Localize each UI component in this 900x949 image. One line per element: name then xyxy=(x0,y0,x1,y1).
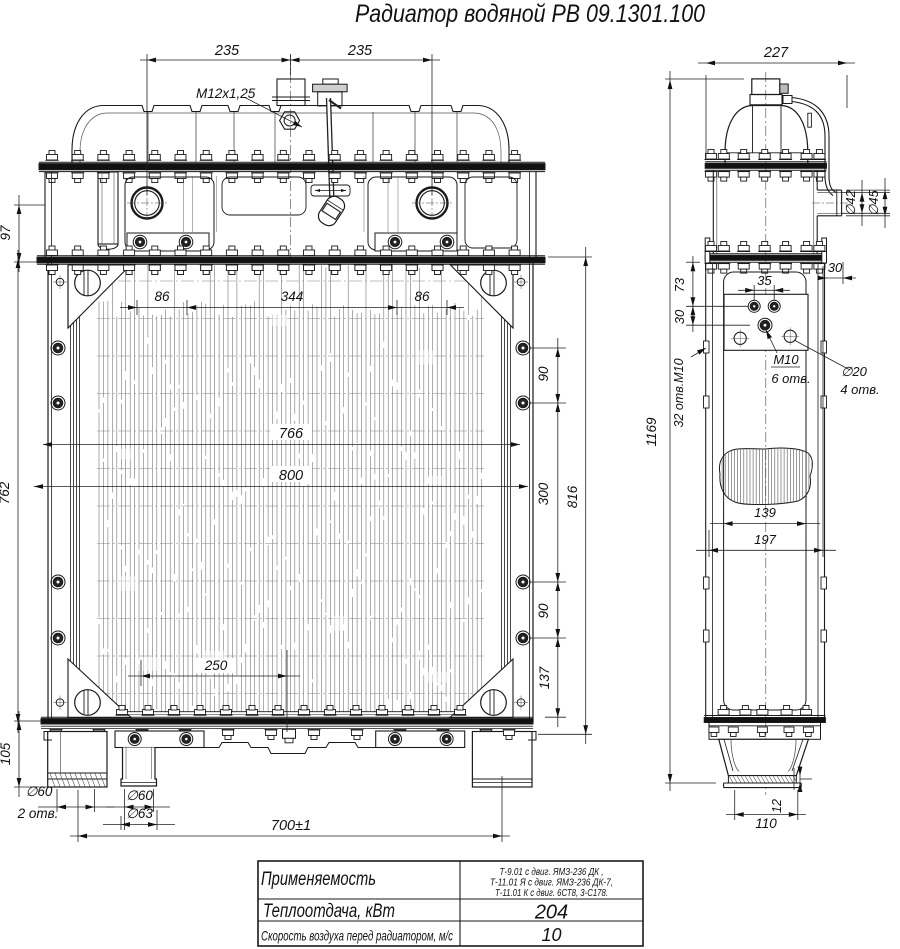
svg-text:86: 86 xyxy=(414,289,430,304)
svg-text:Радиатор водяной РВ 09.1301.10: Радиатор водяной РВ 09.1301.100 xyxy=(355,0,705,28)
svg-text:∅45: ∅45 xyxy=(866,189,881,216)
svg-text:М10: М10 xyxy=(773,352,799,367)
svg-text:∅20: ∅20 xyxy=(841,364,868,379)
svg-text:137: 137 xyxy=(537,666,552,689)
svg-text:197: 197 xyxy=(754,532,776,547)
svg-text:Т-9.01 с двиг. ЯМЗ-236 ДК ,: Т-9.01 с двиг. ЯМЗ-236 ДК , xyxy=(500,867,604,878)
svg-text:Теплоотдача, кВт: Теплоотдача, кВт xyxy=(263,901,395,922)
svg-text:Т-11.01 К с двиг. 6СТ8, 3-С178: Т-11.01 К с двиг. 6СТ8, 3-С178. xyxy=(495,888,608,899)
svg-text:∅60: ∅60 xyxy=(26,784,53,799)
svg-text:800: 800 xyxy=(279,468,303,484)
svg-text:Применяемость: Применяемость xyxy=(261,869,376,890)
svg-text:235: 235 xyxy=(347,43,373,59)
svg-text:227: 227 xyxy=(763,45,789,61)
svg-text:∅42: ∅42 xyxy=(843,189,858,216)
svg-text:97: 97 xyxy=(0,225,13,241)
svg-text:235: 235 xyxy=(214,43,240,59)
svg-text:766: 766 xyxy=(279,426,304,442)
svg-text:86: 86 xyxy=(154,289,170,304)
svg-text:4 отв.: 4 отв. xyxy=(840,382,879,397)
svg-text:73: 73 xyxy=(672,277,687,292)
svg-text:10: 10 xyxy=(541,925,561,945)
svg-text:250: 250 xyxy=(204,658,228,673)
svg-text:110: 110 xyxy=(755,816,777,831)
svg-text:32 отв.М10: 32 отв.М10 xyxy=(672,358,686,427)
svg-text:Скорость воздуха перед радиато: Скорость воздуха перед радиатором, м/с xyxy=(261,928,453,944)
svg-text:6 отв.: 6 отв. xyxy=(771,371,810,386)
svg-text:35: 35 xyxy=(757,273,772,288)
svg-text:105: 105 xyxy=(0,742,13,765)
svg-text:12: 12 xyxy=(770,799,784,813)
svg-text:90: 90 xyxy=(536,603,551,619)
svg-text:204: 204 xyxy=(534,902,568,924)
svg-text:90: 90 xyxy=(536,366,551,382)
svg-text:139: 139 xyxy=(754,505,776,520)
svg-text:2 отв.: 2 отв. xyxy=(17,806,59,821)
svg-text:30: 30 xyxy=(828,260,843,275)
svg-text:∅63: ∅63 xyxy=(126,806,153,821)
svg-text:700±1: 700±1 xyxy=(271,818,311,834)
svg-text:816: 816 xyxy=(565,485,580,508)
svg-text:30: 30 xyxy=(672,309,687,324)
svg-text:М12х1,25: М12х1,25 xyxy=(196,86,256,101)
svg-text:344: 344 xyxy=(281,289,304,304)
svg-text:300: 300 xyxy=(536,482,551,505)
svg-text:Т-11.01 Я с двиг. ЯМЗ-236 ДК-7: Т-11.01 Я с двиг. ЯМЗ-236 ДК-7, xyxy=(490,878,613,889)
svg-text:∅60: ∅60 xyxy=(126,788,153,803)
svg-text:762: 762 xyxy=(0,481,12,504)
svg-text:1169: 1169 xyxy=(644,417,659,447)
